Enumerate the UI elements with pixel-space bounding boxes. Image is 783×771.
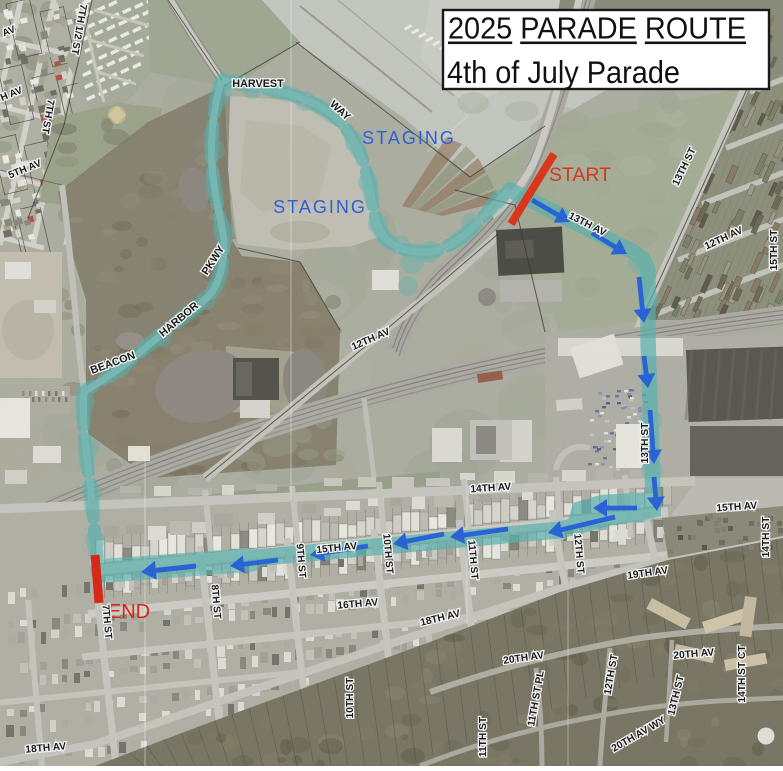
svg-text:2025 PARADE ROUTE: 2025 PARADE ROUTE — [448, 12, 746, 46]
svg-text:4th of July Parade: 4th of July Parade — [447, 54, 680, 90]
